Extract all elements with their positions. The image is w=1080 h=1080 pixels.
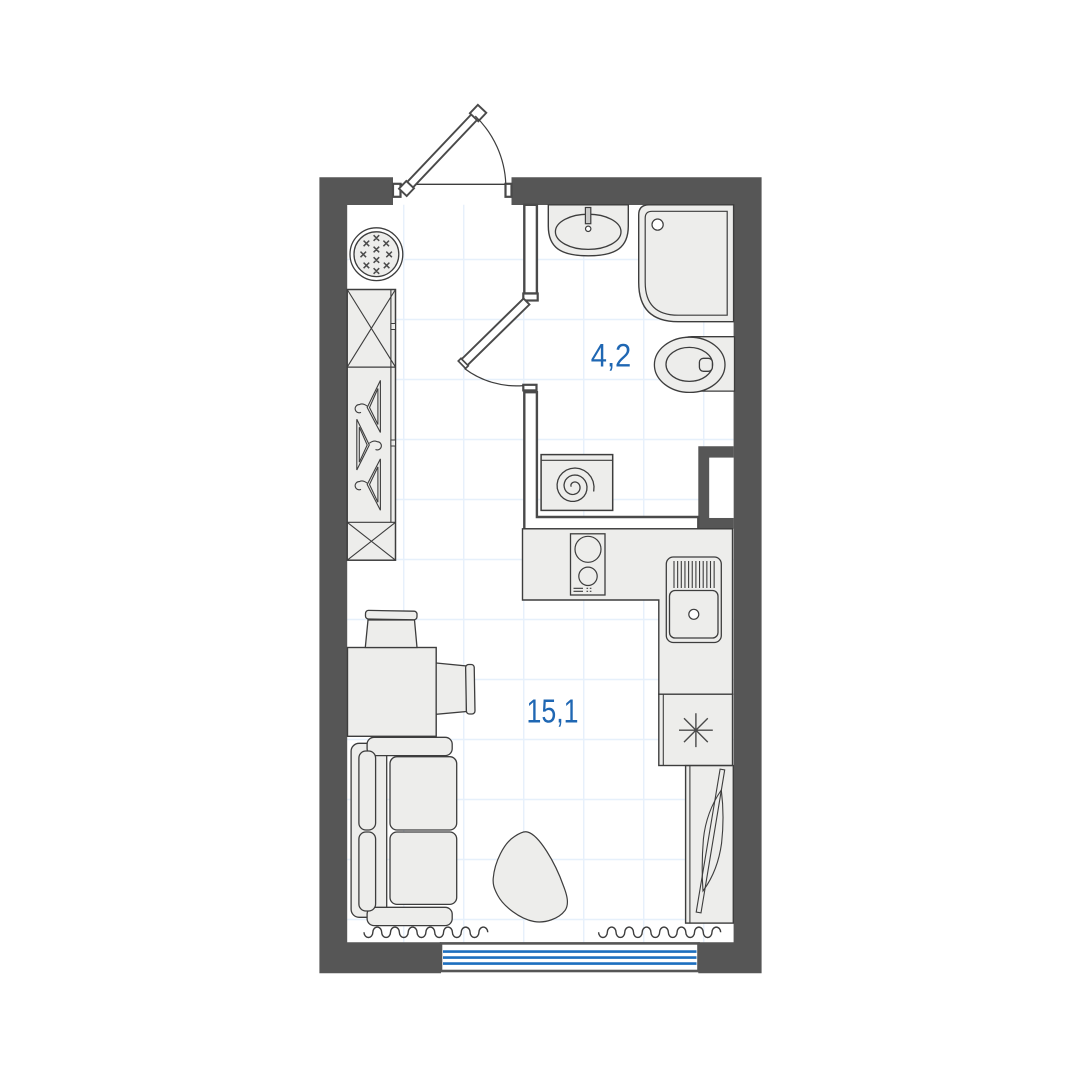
svg-text:4,2: 4,2 — [591, 338, 632, 374]
svg-text:15,1: 15,1 — [527, 693, 579, 730]
